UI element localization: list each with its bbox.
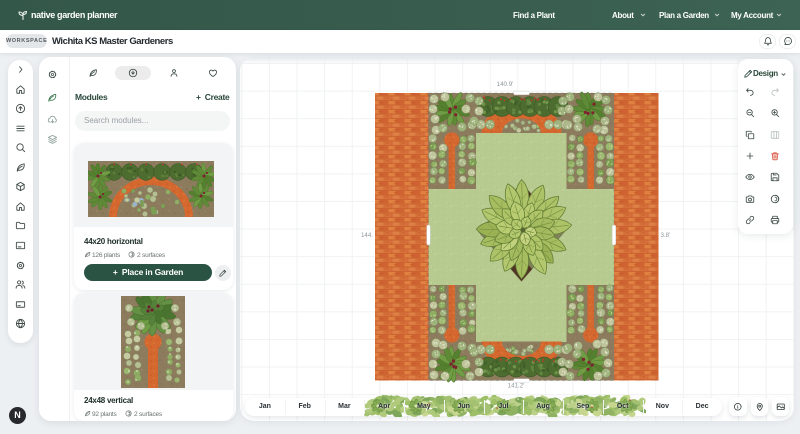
svg-text:140.9': 140.9'	[497, 81, 514, 88]
svg-text:144.: 144.	[361, 232, 373, 239]
svg-text:141.2': 141.2'	[508, 383, 525, 390]
svg-text:3.8': 3.8'	[661, 232, 671, 239]
